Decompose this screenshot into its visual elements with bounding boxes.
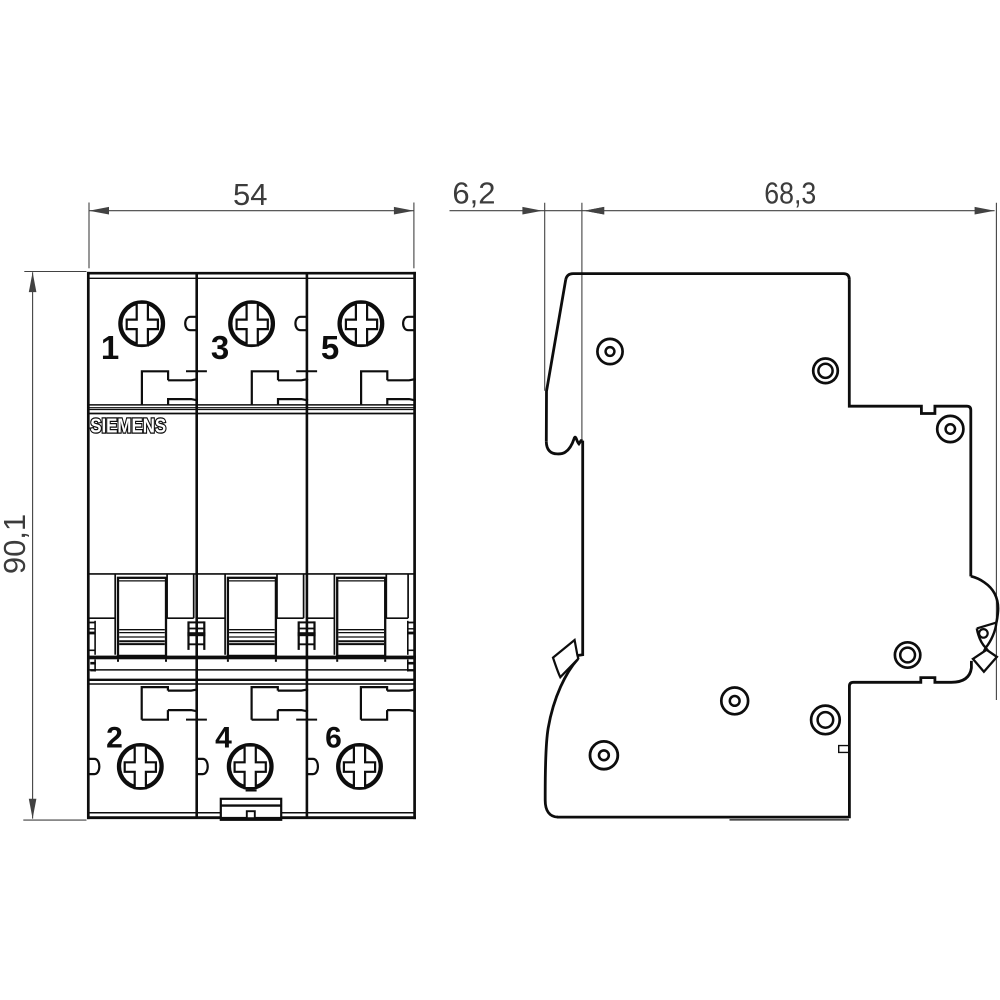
svg-text:90,1: 90,1 xyxy=(0,514,32,574)
svg-text:6,2: 6,2 xyxy=(452,175,495,210)
svg-text:SIEMENS: SIEMENS xyxy=(90,415,166,437)
svg-text:6: 6 xyxy=(325,722,342,755)
svg-text:4: 4 xyxy=(215,722,232,755)
svg-text:68,3: 68,3 xyxy=(764,175,816,210)
svg-text:5: 5 xyxy=(321,329,339,366)
svg-text:54: 54 xyxy=(233,177,267,212)
svg-text:2: 2 xyxy=(106,722,123,755)
svg-text:3: 3 xyxy=(211,329,229,366)
svg-text:1: 1 xyxy=(101,329,119,366)
